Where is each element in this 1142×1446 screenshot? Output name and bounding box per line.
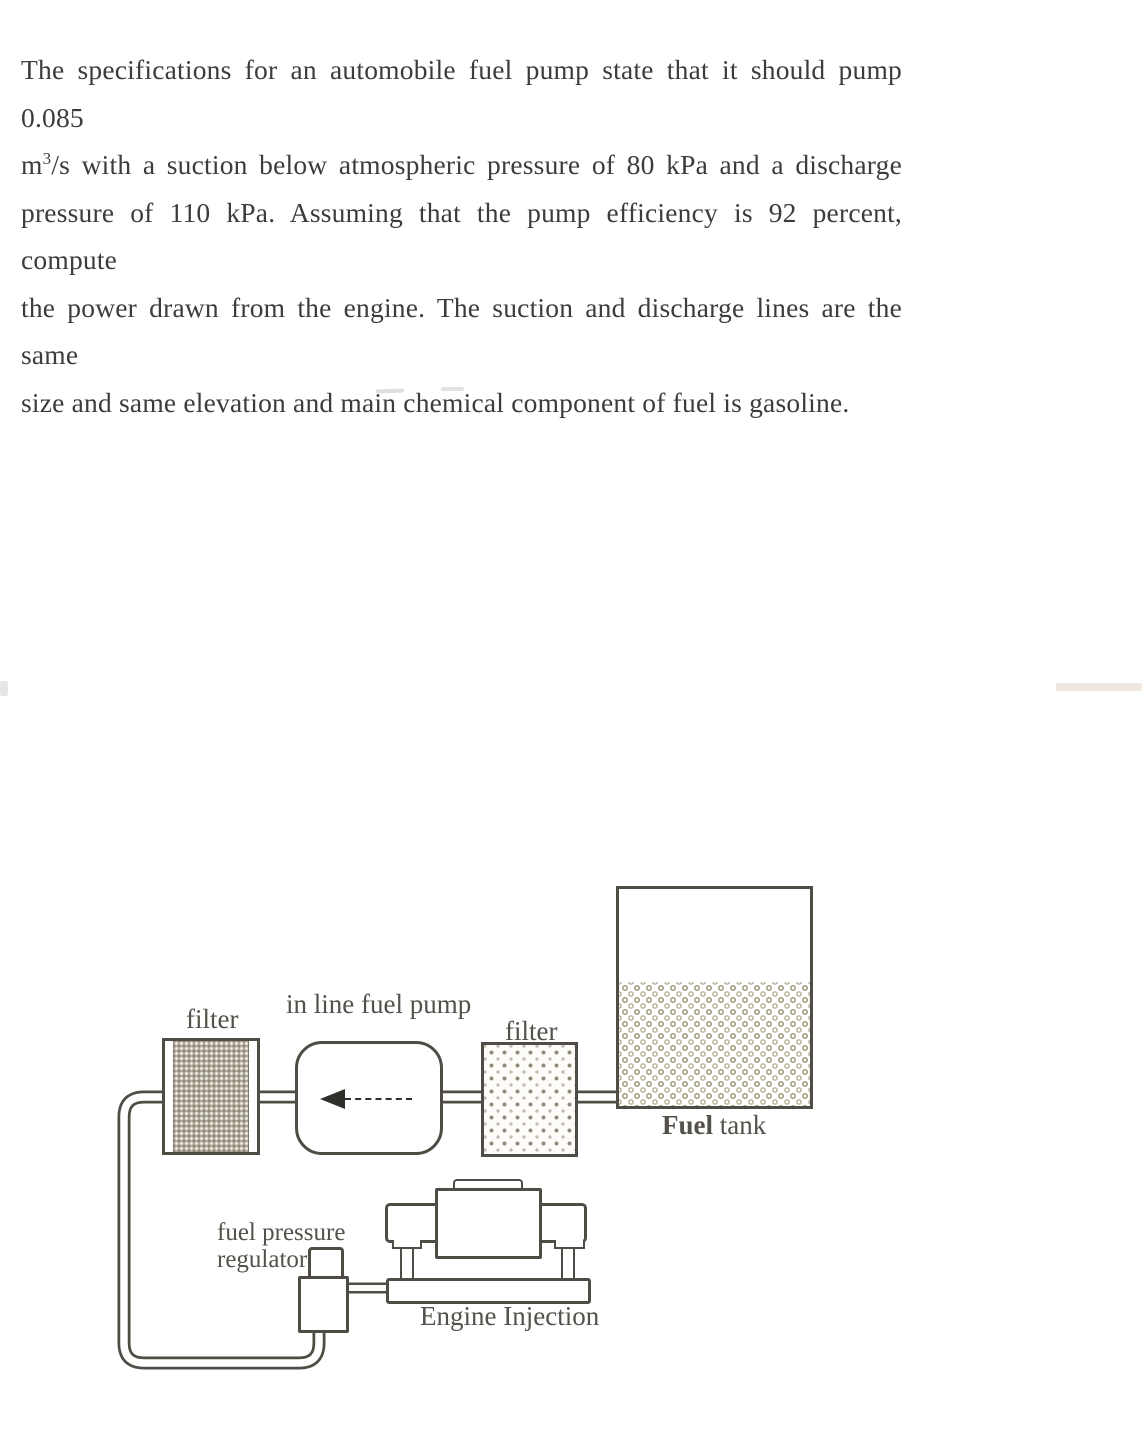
flow-arrow-shaft bbox=[345, 1098, 412, 1100]
scan-artifact bbox=[0, 681, 8, 696]
superscript-3: 3 bbox=[43, 149, 52, 168]
label-fuel-tank: Fuel tank bbox=[662, 1112, 766, 1139]
problem-line-2: m3/s with a suction below atmospheric pr… bbox=[21, 141, 902, 189]
problem-line-2-pre: m bbox=[21, 149, 43, 180]
label-fuel-tank-rest: tank bbox=[713, 1110, 766, 1140]
label-filter-left: filter bbox=[186, 1006, 238, 1033]
scan-artifact bbox=[441, 387, 464, 391]
in-line-fuel-pump bbox=[295, 1041, 443, 1155]
label-in-line-fuel-pump: in line fuel pump bbox=[286, 991, 471, 1018]
engine-center-block bbox=[435, 1188, 542, 1259]
problem-line-2-rest: /s with a suction below atmospheric pres… bbox=[51, 149, 902, 180]
engine-right-leg bbox=[561, 1248, 575, 1281]
label-filter-right: filter bbox=[505, 1018, 557, 1045]
label-engine-injection: Engine Injection bbox=[420, 1303, 599, 1330]
problem-line-4: the power drawn from the engine. The suc… bbox=[21, 284, 902, 379]
problem-statement: The specifications for an automobile fue… bbox=[21, 46, 902, 426]
label-regulator-line-1: fuel pressure bbox=[217, 1219, 345, 1246]
label-regulator-line-2: regulator bbox=[217, 1246, 345, 1273]
problem-line-3: pressure of 110 kPa. Assuming that the p… bbox=[21, 189, 902, 284]
fuel-level-fill bbox=[619, 982, 810, 1106]
fuel-pressure-regulator bbox=[298, 1276, 349, 1333]
flow-arrow-left-icon bbox=[320, 1089, 345, 1109]
problem-line-1: The specifications for an automobile fue… bbox=[21, 46, 902, 141]
fuel-tank bbox=[616, 886, 813, 1109]
label-fuel-tank-bold: Fuel bbox=[662, 1110, 713, 1140]
problem-line-5: size and same elevation and main chemica… bbox=[21, 379, 902, 427]
scan-artifact bbox=[1056, 683, 1142, 691]
document-page: The specifications for an automobile fue… bbox=[0, 0, 1142, 1446]
fuel-filter-right bbox=[481, 1042, 578, 1157]
label-fuel-pressure-regulator: fuel pressure regulator bbox=[217, 1219, 345, 1273]
filter-mesh-texture bbox=[173, 1041, 249, 1152]
engine-left-leg bbox=[400, 1248, 414, 1281]
fuel-filter-left bbox=[162, 1038, 260, 1155]
